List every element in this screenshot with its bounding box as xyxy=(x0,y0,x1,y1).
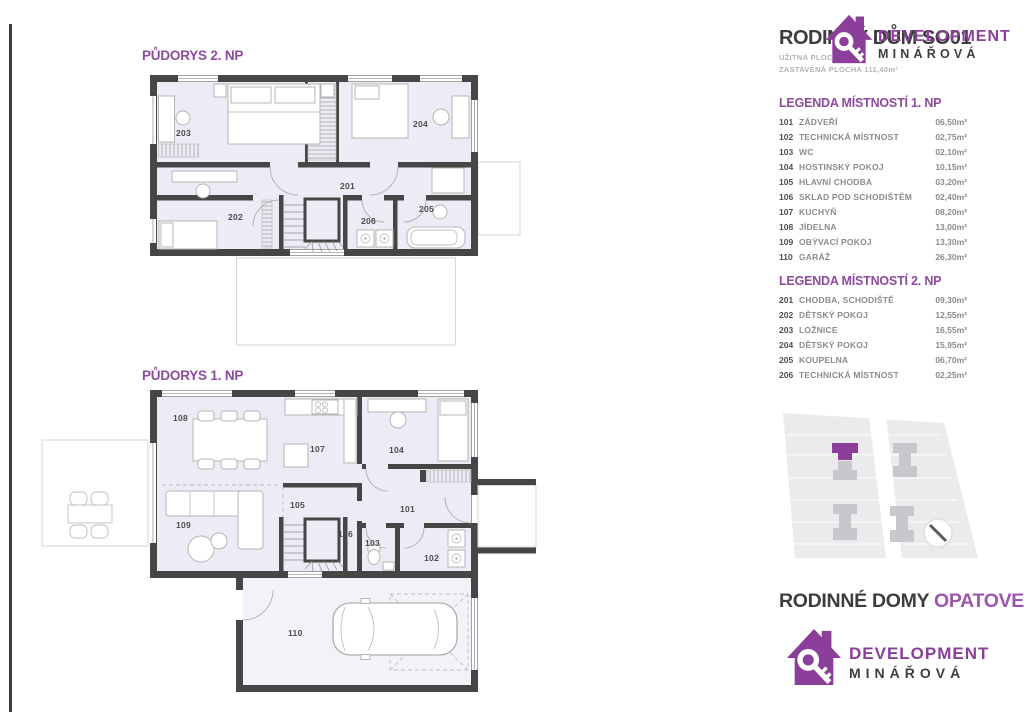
legend-row: 204DĚTSKÝ POKOJ15,95m² xyxy=(779,340,967,355)
room-label-103: 103 xyxy=(365,538,380,548)
legend-row: 107KUCHYŇ08,20m² xyxy=(779,207,967,222)
roof-outline-below xyxy=(237,258,456,345)
nightstand xyxy=(321,84,334,97)
terrace xyxy=(42,440,148,546)
room-label-107: 107 xyxy=(310,444,325,454)
brand-logo-top: DEVELOPMENT MINÁŘOVÁ xyxy=(824,10,1011,68)
entry-porch-outline xyxy=(478,486,536,548)
room-label-106: 106 xyxy=(338,529,353,539)
legend-np2: LEGENDA MÍSTNOSTÍ 2. NP 201CHODBA, SCHOD… xyxy=(779,274,967,385)
closet-hatch-203 xyxy=(159,144,199,157)
room-label-201: 201 xyxy=(340,181,355,191)
floor-plan-1np: 108 107 104 105 101 106 109 103 102 110 xyxy=(42,390,536,692)
shower-205 xyxy=(432,168,464,193)
legend-np1-heading: LEGENDA MÍSTNOSTÍ 1. NP xyxy=(779,96,967,110)
room-label-101: 101 xyxy=(400,504,415,514)
bed-204 xyxy=(352,84,408,138)
desk-204 xyxy=(452,96,469,138)
legend-row: 104HOSTINSKÝ POKOJ10,15m² xyxy=(779,162,967,177)
washbasin-205 xyxy=(433,205,447,219)
site-plan xyxy=(783,413,978,558)
bed-202 xyxy=(159,221,217,249)
legend-row: 109OBÝVACÍ POKOJ13,30m² xyxy=(779,237,967,252)
room-label-203: 203 xyxy=(176,128,191,138)
legend-row: 110GARÁŽ26,30m² xyxy=(779,252,967,267)
room-label-109: 109 xyxy=(176,520,191,530)
room-label-206: 206 xyxy=(361,216,376,226)
nightstand xyxy=(214,84,226,97)
closet-hatch-202 xyxy=(262,200,272,248)
legend-row: 201CHODBA, SCHODIŠTĚ09,30m² xyxy=(779,295,967,310)
room-label-205: 205 xyxy=(419,204,434,214)
cabinet-202 xyxy=(172,171,237,182)
room-label-102: 102 xyxy=(424,553,439,563)
legend-row: 202DĚTSKÝ POKOJ12,55m² xyxy=(779,310,967,325)
legend-np1: LEGENDA MÍSTNOSTÍ 1. NP 101ZÁDVEŘÍ06,50m… xyxy=(779,96,967,267)
legend-row: 108JÍDELNA13,00m² xyxy=(779,222,967,237)
room-label-108: 108 xyxy=(173,413,188,423)
legend-row: 206TECHNICKÁ MÍSTNOST02,25m² xyxy=(779,370,967,385)
closet-hatch-101 xyxy=(427,470,471,482)
desk-203 xyxy=(159,96,175,142)
plan-sheet: PŮDORYS 2. NP PŮDORYS 1. NP xyxy=(0,0,1024,723)
project-title-dark: RODINNÉ DOMY xyxy=(779,590,934,612)
house-key-icon xyxy=(824,10,874,68)
legend-row: 101ZÁDVEŘÍ06,50m² xyxy=(779,117,967,132)
brand-name-top: DEVELOPMENT xyxy=(878,28,1011,46)
chair-202 xyxy=(196,184,210,198)
legend-row: 102TECHNICKÁ MÍSTNOST02,75m² xyxy=(779,132,967,147)
room-label-204: 204 xyxy=(413,119,428,129)
legend-row: 106SKLAD POD SCHODIŠTĚM02,40m² xyxy=(779,192,967,207)
room-label-104: 104 xyxy=(389,445,404,455)
legend-row: 205KOUPELNA06,70m² xyxy=(779,355,967,370)
house-key-icon xyxy=(785,624,843,690)
room-label-110: 110 xyxy=(288,628,303,638)
brand-logo-bottom: DEVELOPMENT MINÁŘOVÁ xyxy=(785,624,989,690)
roof-outline-right xyxy=(478,162,520,235)
brand-subname-bottom: MINÁŘOVÁ xyxy=(849,665,989,681)
car xyxy=(333,599,457,660)
chair-203 xyxy=(176,111,190,125)
garage xyxy=(236,572,478,693)
chair-204 xyxy=(433,109,449,125)
dining-table-108 xyxy=(193,411,267,469)
legend-row: 103WC02,10m² xyxy=(779,147,967,162)
legend-np2-heading: LEGENDA MÍSTNOSTÍ 2. NP xyxy=(779,274,967,288)
legend-row: 105HLAVNÍ CHODBA03,20m² xyxy=(779,177,967,192)
double-bed-203 xyxy=(228,84,320,144)
room-label-105: 105 xyxy=(290,500,305,510)
project-title: RODINNÉ DOMY OPATOVEC xyxy=(779,590,1024,613)
bathtub-205 xyxy=(407,227,465,248)
brand-subname-top: MINÁŘOVÁ xyxy=(878,47,1011,61)
room-label-202: 202 xyxy=(228,212,243,222)
brand-name-bottom: DEVELOPMENT xyxy=(849,644,989,664)
floor-plan-2np: 203 202 204 201 206 205 xyxy=(150,75,520,345)
project-title-accent: OPATOVEC xyxy=(934,590,1024,612)
legend-row: 203LOŽNICE16,55m² xyxy=(779,325,967,340)
compass-icon xyxy=(924,519,952,547)
